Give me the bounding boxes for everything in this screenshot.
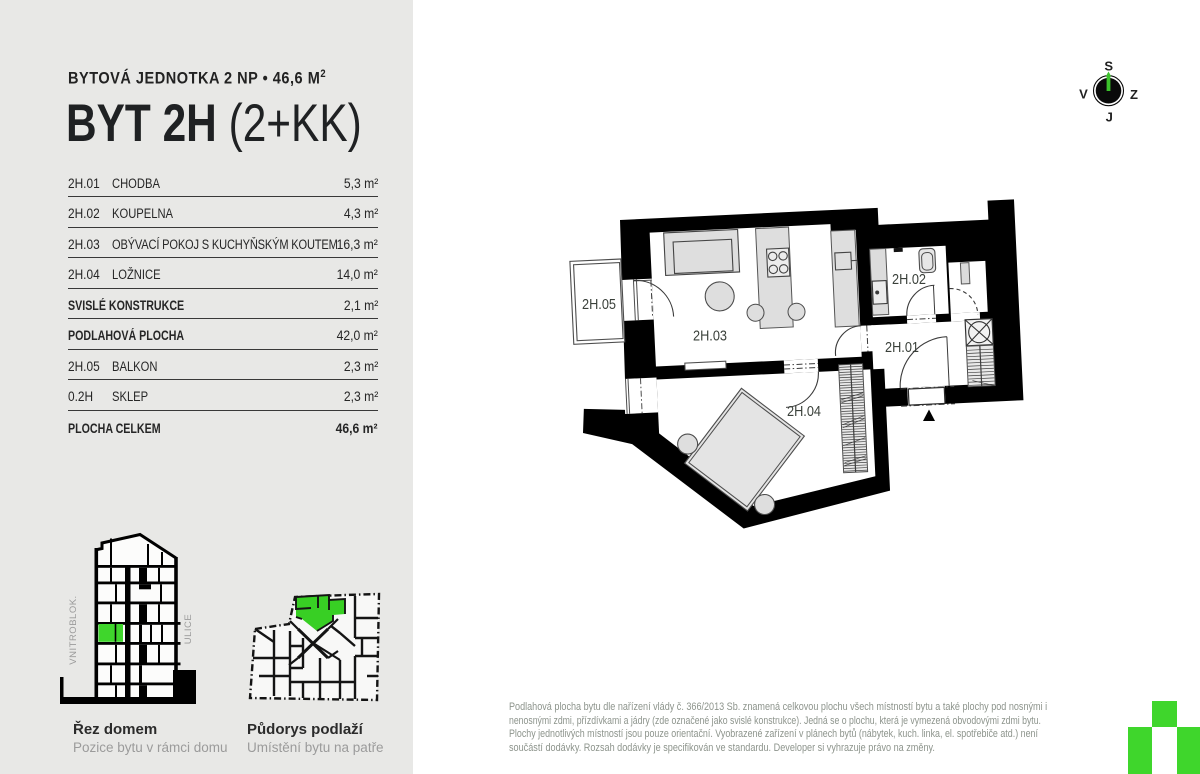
svg-text:J: J [1106, 110, 1113, 125]
svg-text:2H.05: 2H.05 [582, 297, 616, 313]
svg-text:2H.01: 2H.01 [885, 340, 919, 356]
svg-text:S: S [1104, 59, 1113, 74]
svg-text:2H.03: 2H.03 [693, 329, 727, 345]
svg-text:2H.04: 2H.04 [787, 404, 821, 420]
svg-text:2H.02: 2H.02 [892, 272, 926, 288]
svg-text:ULICE: ULICE [183, 614, 194, 644]
svg-text:VNITROBLOK.: VNITROBLOK. [68, 595, 79, 664]
svg-text:Z: Z [1130, 87, 1138, 102]
svg-text:V: V [1079, 86, 1088, 101]
